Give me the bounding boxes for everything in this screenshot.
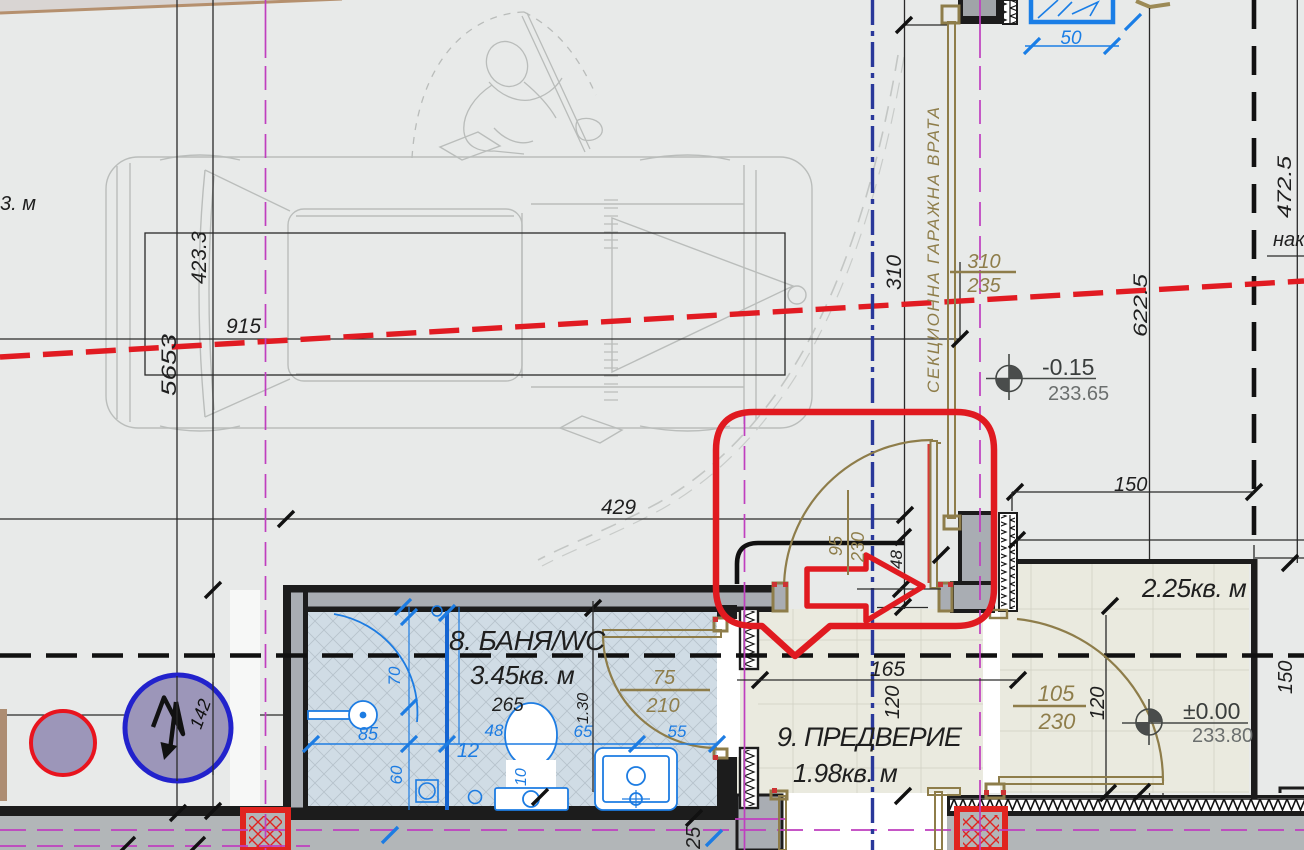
svg-text:48: 48: [485, 721, 504, 740]
svg-text:2.25кв. м: 2.25кв. м: [1141, 573, 1247, 603]
svg-text:235: 235: [966, 275, 1001, 297]
svg-text:233.80: 233.80: [1192, 725, 1253, 747]
svg-text:150: 150: [1114, 474, 1147, 496]
svg-text:150: 150: [1275, 661, 1297, 694]
svg-text:310: 310: [967, 251, 1000, 273]
svg-text:-0.15: -0.15: [1042, 354, 1094, 380]
svg-text:12: 12: [457, 740, 479, 762]
svg-text:310: 310: [883, 255, 906, 290]
svg-text:105: 105: [1038, 681, 1075, 706]
svg-text:3.45кв. м: 3.45кв. м: [470, 660, 575, 690]
svg-text:60: 60: [387, 765, 406, 784]
svg-text:120: 120: [882, 686, 904, 719]
svg-text:1.98кв. м: 1.98кв. м: [793, 758, 898, 788]
svg-text:210: 210: [645, 695, 679, 717]
svg-text:50: 50: [1060, 28, 1082, 49]
svg-text:233.65: 233.65: [1048, 383, 1109, 405]
svg-text:472.5: 472.5: [1275, 155, 1296, 218]
svg-text:9. ПРЕДВЕРИЕ: 9. ПРЕДВЕРИЕ: [777, 722, 963, 752]
svg-text:75: 75: [653, 667, 676, 689]
svg-text:70: 70: [385, 666, 404, 685]
svg-text:55: 55: [668, 722, 687, 741]
svg-text:120: 120: [1087, 687, 1109, 720]
svg-text:нак: нак: [1273, 229, 1304, 251]
svg-text:423.3: 423.3: [188, 231, 211, 284]
svg-text:165: 165: [870, 658, 905, 681]
svg-text:СЕКЦИОННА ГАРАЖНА ВРАТА: СЕКЦИОННА ГАРАЖНА ВРАТА: [924, 107, 943, 393]
svg-text:265: 265: [491, 695, 524, 716]
svg-text:±0.00: ±0.00: [1183, 698, 1240, 724]
svg-text:622.5: 622.5: [1131, 273, 1152, 337]
svg-text:25: 25: [683, 826, 705, 850]
svg-text:429: 429: [601, 496, 636, 519]
svg-text:5653: 5653: [158, 334, 181, 396]
svg-text:10: 10: [513, 768, 530, 786]
svg-text:915: 915: [226, 315, 261, 338]
svg-text:8. БАНЯ/WC: 8. БАНЯ/WC: [449, 625, 606, 656]
svg-text:230: 230: [848, 532, 868, 563]
svg-text:230: 230: [1038, 709, 1076, 734]
svg-text:95: 95: [826, 535, 846, 556]
svg-text:48: 48: [887, 550, 906, 569]
svg-text:3. м: 3. м: [0, 193, 36, 215]
svg-text:1.30: 1.30: [575, 693, 592, 724]
svg-text:85: 85: [358, 724, 379, 744]
